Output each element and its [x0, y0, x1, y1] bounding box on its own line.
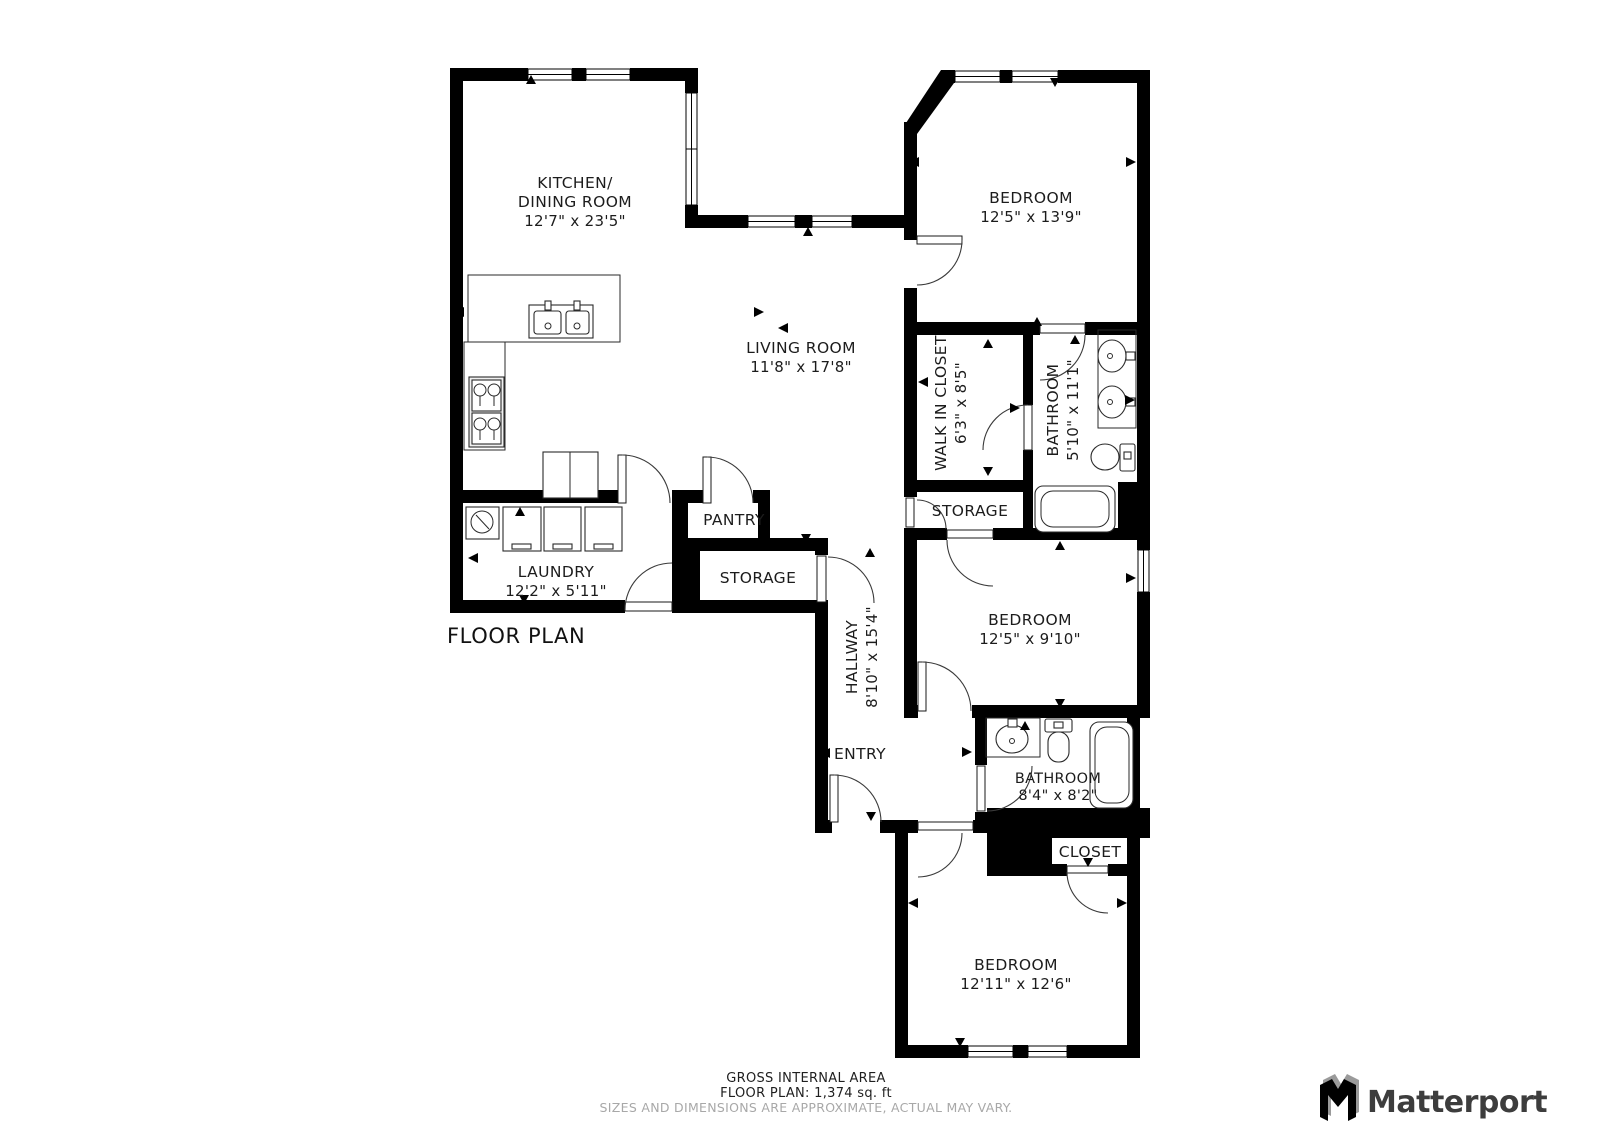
bedroom1-dims: 12'5" x 13'9" [980, 208, 1082, 226]
storage-right-label: STORAGE [932, 502, 1009, 520]
dryer-icon [544, 507, 581, 551]
toilet-icon [1091, 444, 1135, 471]
bathroom2-sink [986, 718, 1040, 757]
bedroom3-dims: 12'11" x 12'6" [960, 975, 1071, 993]
bedroom2-dims: 12'5" x 9'10" [979, 630, 1081, 648]
window [955, 71, 1000, 82]
laundry-dims: 12'2" x 5'11" [505, 582, 607, 600]
laundry-label: LAUNDRY [518, 563, 595, 581]
kitchen-label-line1: KITCHEN/ [537, 174, 613, 192]
door [618, 455, 670, 503]
entry-label: ENTRY [834, 745, 886, 763]
bedroom3-label: BEDROOM [974, 956, 1058, 974]
door [1067, 866, 1108, 913]
door [918, 662, 971, 711]
window [748, 216, 795, 227]
bathroom2-dims: 8'4" x 8'2" [1018, 788, 1097, 804]
window [812, 216, 852, 227]
bedroom1-label: BEDROOM [989, 189, 1073, 207]
bathroom1-label: BATHROOM [1044, 364, 1062, 457]
bathroom1-vanity [1098, 330, 1136, 428]
walk-in-closet-dims: 6'3" x 8'5" [952, 362, 970, 444]
hallway-label: HALLWAY [843, 620, 861, 694]
gross-area-label: GROSS INTERNAL AREA [726, 1071, 885, 1086]
kitchen-label-line2: DINING ROOM [518, 193, 632, 211]
window [968, 1046, 1013, 1057]
dryer-icon-2 [585, 507, 622, 551]
window [686, 93, 697, 205]
storage-left-label: STORAGE [720, 569, 797, 587]
matterport-wordmark: Matterport [1367, 1085, 1547, 1120]
hallway-dims: 8'10" x 15'4" [863, 606, 881, 708]
bathtub-icon [1035, 486, 1115, 532]
pantry-label: PANTRY [703, 511, 765, 529]
toilet-icon-2 [1045, 719, 1072, 762]
laundry-sink [466, 507, 499, 539]
floor-plan-page: { "title": "FLOOR PLAN", "rooms": { "kit… [0, 0, 1600, 1132]
door [625, 563, 672, 611]
window [1012, 71, 1058, 82]
page-title: FLOOR PLAN [447, 624, 585, 648]
window [1138, 550, 1149, 592]
stove-icon [469, 377, 504, 447]
living-room-label: LIVING ROOM [746, 339, 856, 357]
walk-in-closet-label: WALK IN CLOSET [932, 335, 950, 471]
kitchen-sink [529, 301, 593, 338]
door [983, 405, 1032, 450]
bathroom1-dims: 5'10" x 11'1" [1064, 359, 1082, 461]
floor-plan-svg: KITCHEN/ DINING ROOM 12'7" x 23'5" LIVIN… [0, 0, 1600, 1132]
living-room-dims: 11'8" x 17'8" [750, 358, 852, 376]
fridge-icon [543, 452, 598, 498]
footer: GROSS INTERNAL AREA FLOOR PLAN: 1,374 sq… [600, 1071, 1013, 1115]
matterport-m-icon [1320, 1074, 1359, 1121]
door [817, 556, 874, 603]
door [917, 236, 962, 285]
disclaimer-text: SIZES AND DIMENSIONS ARE APPROXIMATE, AC… [600, 1100, 1013, 1115]
kitchen-dims: 12'7" x 23'5" [524, 212, 626, 230]
window [528, 69, 572, 80]
gross-area-value: FLOOR PLAN: 1,374 sq. ft [720, 1086, 892, 1101]
matterport-logo: Matterport [1320, 1074, 1547, 1121]
door [918, 822, 973, 877]
door [947, 530, 993, 586]
window [586, 69, 630, 80]
window [1028, 1046, 1067, 1057]
bedroom2-label: BEDROOM [988, 611, 1072, 629]
bathroom2-label: BATHROOM [1015, 771, 1101, 787]
door [703, 457, 753, 503]
closet-label: CLOSET [1059, 843, 1122, 861]
